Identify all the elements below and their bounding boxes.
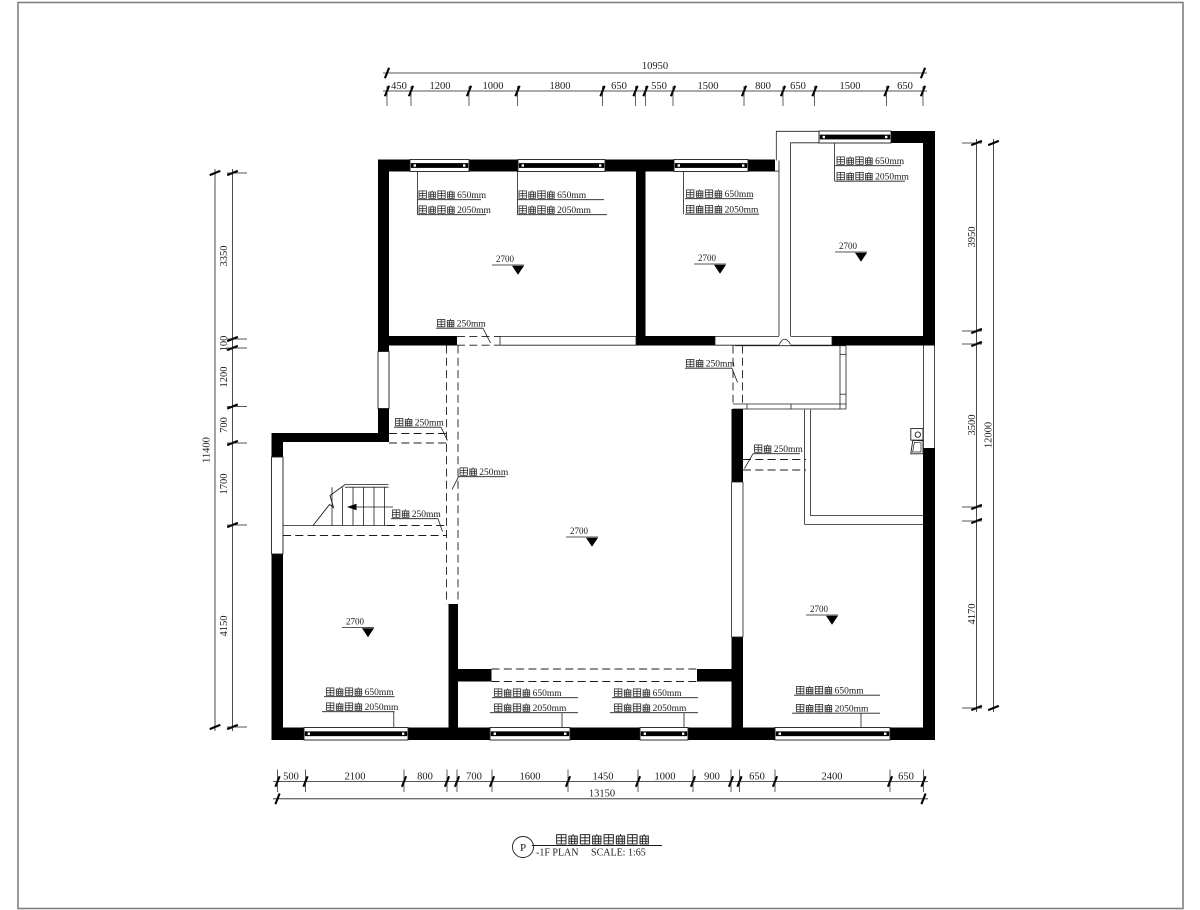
svg-text:550: 550 bbox=[651, 81, 667, 92]
svg-text:650: 650 bbox=[897, 81, 913, 92]
svg-text:13150: 13150 bbox=[589, 788, 615, 799]
svg-text:650: 650 bbox=[898, 772, 914, 783]
svg-text:11400: 11400 bbox=[202, 437, 213, 463]
svg-text:900: 900 bbox=[704, 772, 720, 783]
svg-text:500: 500 bbox=[283, 772, 299, 783]
svg-text:1450: 1450 bbox=[593, 772, 614, 783]
svg-text:2100: 2100 bbox=[345, 772, 366, 783]
svg-text:1500: 1500 bbox=[698, 81, 719, 92]
svg-text:4170: 4170 bbox=[967, 604, 978, 625]
svg-text:3350: 3350 bbox=[219, 246, 230, 267]
svg-text:1200: 1200 bbox=[430, 81, 451, 92]
svg-text:1700: 1700 bbox=[219, 474, 230, 495]
svg-text:1000: 1000 bbox=[655, 772, 676, 783]
svg-text:-1F PLAN SCALE: 1:65: -1F PLAN SCALE: 1:65 bbox=[536, 848, 646, 859]
svg-text:800: 800 bbox=[417, 772, 433, 783]
svg-text:650: 650 bbox=[611, 81, 627, 92]
svg-text:2400: 2400 bbox=[822, 772, 843, 783]
svg-text:3500: 3500 bbox=[967, 415, 978, 436]
svg-text:P: P bbox=[520, 842, 526, 854]
svg-text:2700: 2700 bbox=[810, 604, 829, 614]
svg-text:100: 100 bbox=[219, 336, 230, 352]
svg-text:12000: 12000 bbox=[984, 422, 995, 448]
svg-text:1200: 1200 bbox=[219, 367, 230, 388]
svg-text:3950: 3950 bbox=[967, 227, 978, 248]
svg-text:650: 650 bbox=[749, 772, 765, 783]
svg-text:650: 650 bbox=[790, 81, 806, 92]
svg-text:2700: 2700 bbox=[496, 254, 515, 264]
svg-text:1000: 1000 bbox=[483, 81, 504, 92]
svg-text:1800: 1800 bbox=[550, 81, 571, 92]
svg-text:1500: 1500 bbox=[840, 81, 861, 92]
svg-text:700: 700 bbox=[466, 772, 482, 783]
svg-text:4150: 4150 bbox=[219, 616, 230, 637]
svg-text:800: 800 bbox=[755, 81, 771, 92]
svg-text:1600: 1600 bbox=[520, 772, 541, 783]
svg-text:2700: 2700 bbox=[570, 526, 589, 536]
svg-text:2700: 2700 bbox=[698, 253, 717, 263]
svg-text:450: 450 bbox=[391, 81, 407, 92]
svg-text:10950: 10950 bbox=[642, 61, 668, 72]
svg-text:700: 700 bbox=[219, 417, 230, 433]
svg-text:2700: 2700 bbox=[346, 617, 365, 627]
svg-text:2700: 2700 bbox=[839, 241, 858, 251]
